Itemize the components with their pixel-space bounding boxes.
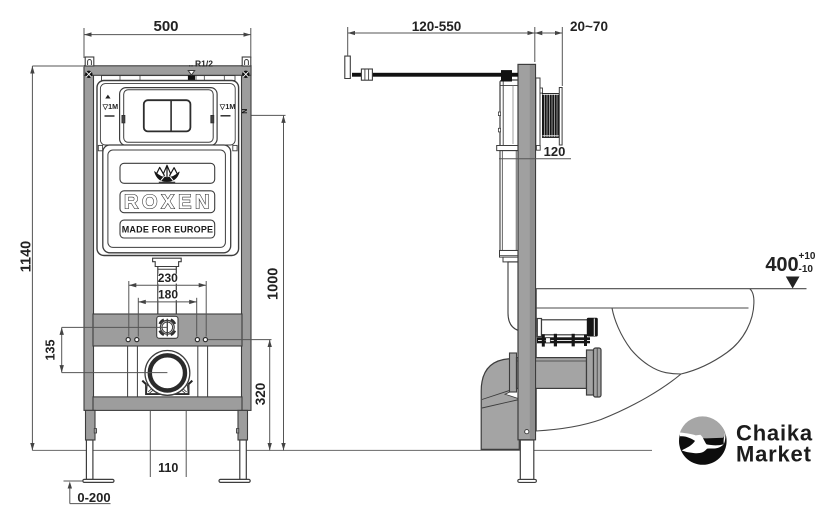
svg-text:-10: -10	[799, 264, 814, 275]
svg-text:MADE FOR EUROPE: MADE FOR EUROPE	[122, 224, 214, 234]
svg-text:135: 135	[44, 340, 58, 361]
svg-text:1000: 1000	[266, 268, 282, 300]
svg-text:▽1M: ▽1M	[219, 102, 236, 111]
svg-text:0-200: 0-200	[77, 490, 110, 505]
svg-text:▽1M: ▽1M	[102, 102, 119, 111]
svg-text:N: N	[242, 109, 249, 114]
svg-text:20~70: 20~70	[570, 19, 608, 34]
svg-text:180: 180	[158, 288, 178, 302]
svg-text:110: 110	[158, 461, 178, 475]
svg-text:+10: +10	[799, 251, 816, 262]
svg-text:R1/2: R1/2	[195, 58, 213, 68]
svg-text:ROXEN: ROXEN	[124, 192, 213, 214]
svg-text:400: 400	[765, 254, 798, 276]
svg-text:1140: 1140	[18, 241, 34, 272]
svg-text:Market: Market	[736, 442, 812, 467]
svg-text:120: 120	[544, 144, 566, 159]
svg-text:320: 320	[253, 383, 268, 406]
svg-text:500: 500	[153, 18, 178, 35]
svg-text:120-550: 120-550	[412, 19, 462, 34]
svg-text:230: 230	[158, 271, 178, 285]
svg-text:..: ..	[189, 58, 194, 68]
